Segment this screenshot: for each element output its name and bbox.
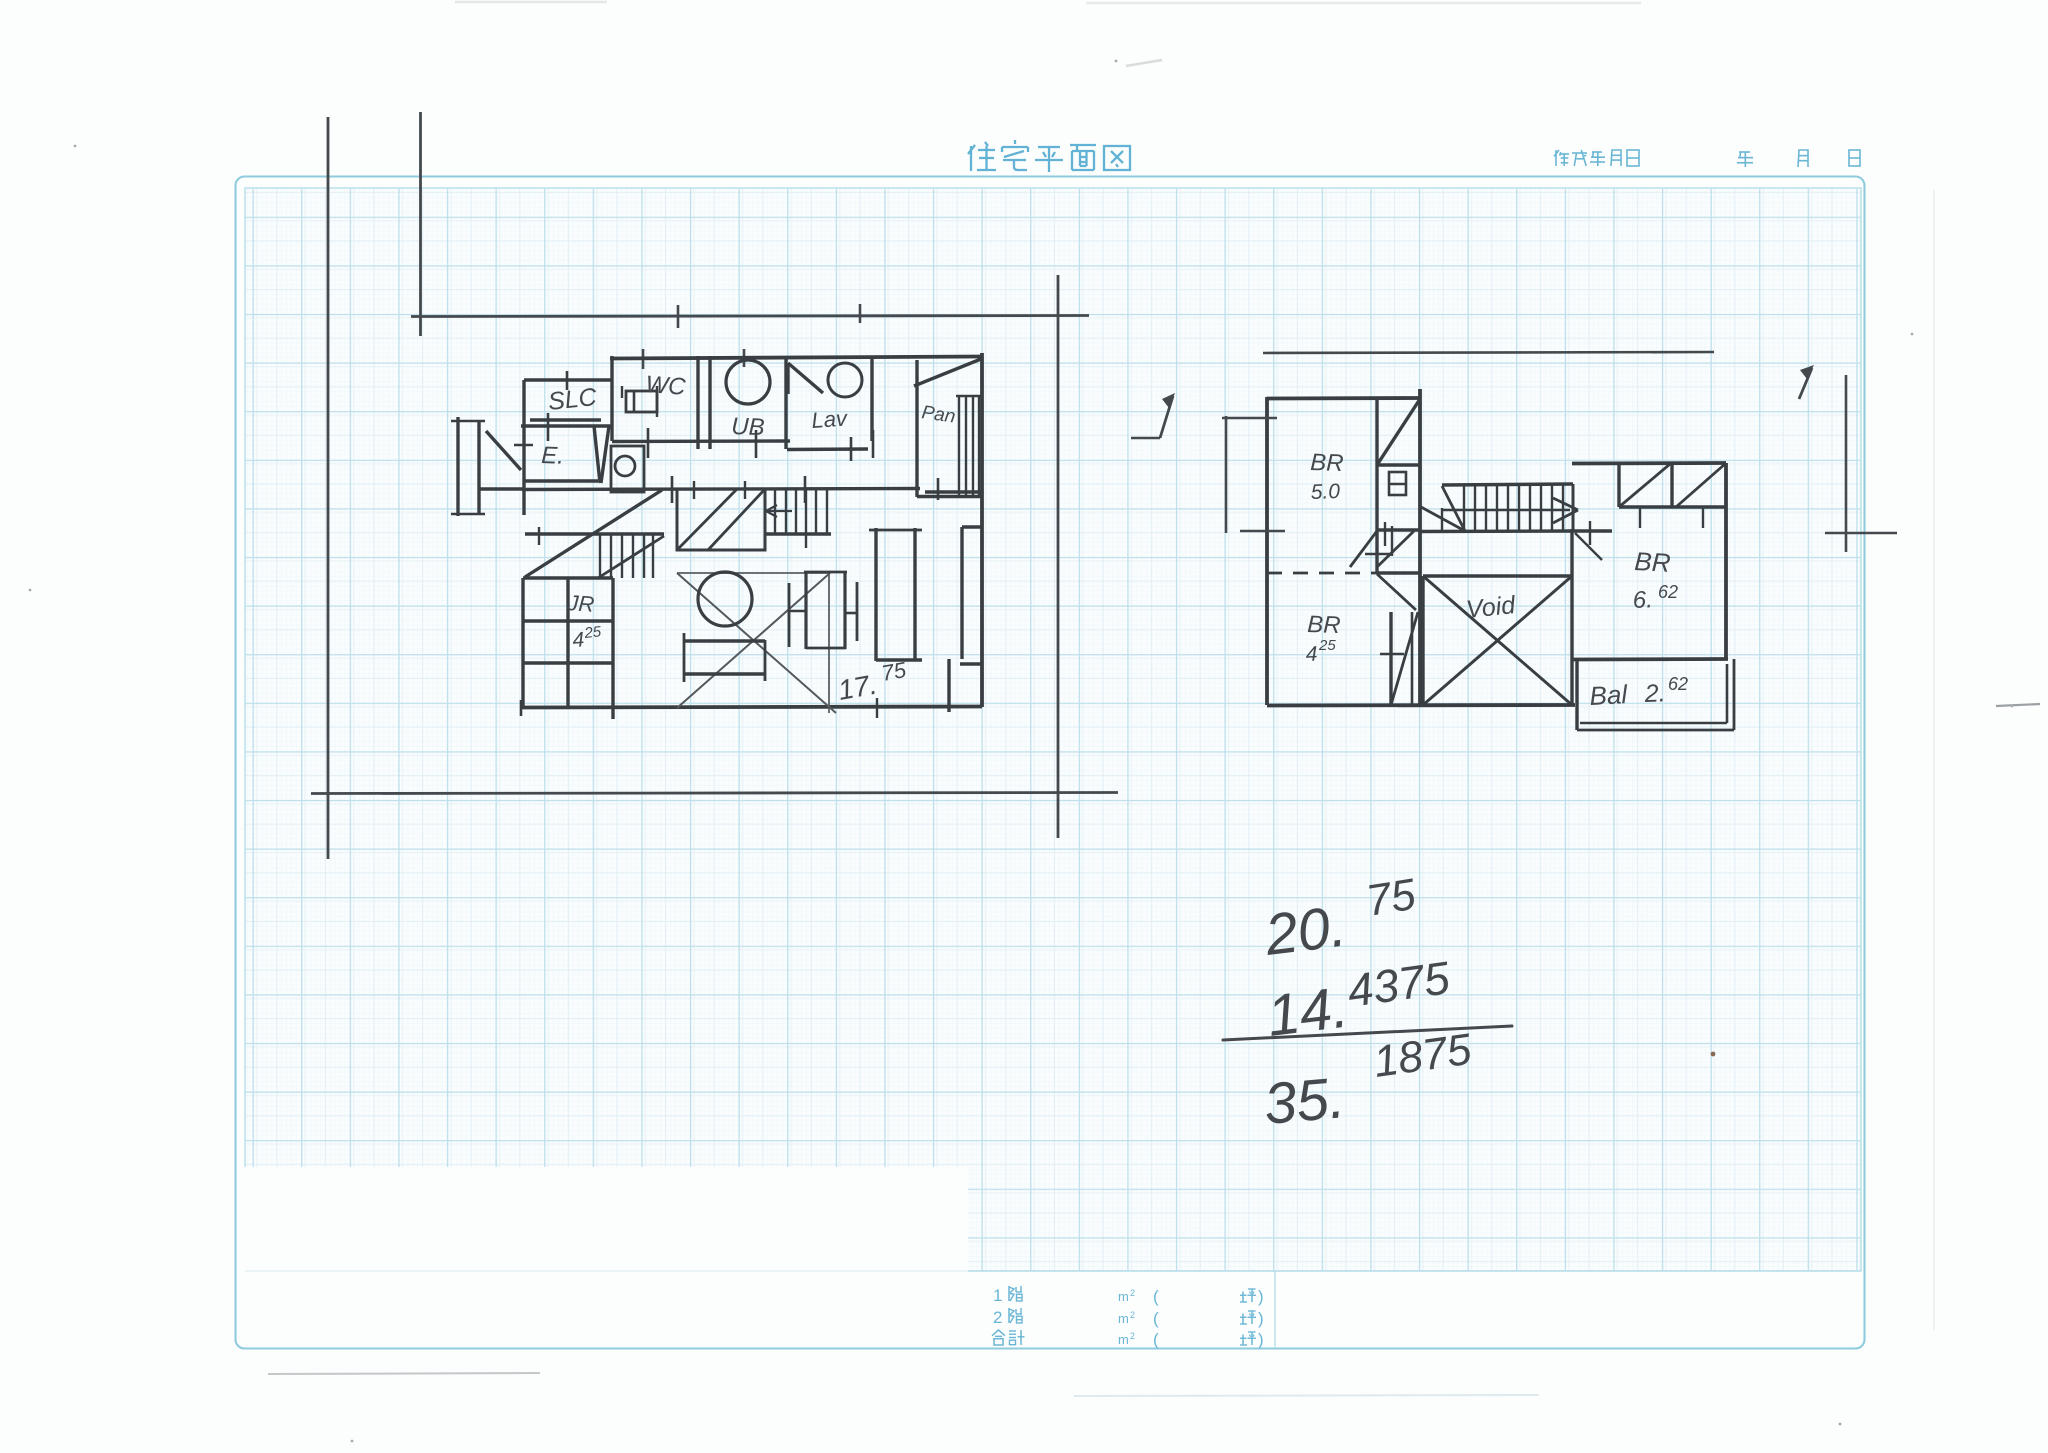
svg-text:): ): [1258, 1309, 1264, 1328]
svg-text:75: 75: [880, 657, 909, 686]
svg-text:m: m: [1118, 1332, 1129, 1347]
svg-text:(: (: [1153, 1287, 1159, 1306]
svg-text:25: 25: [583, 623, 603, 642]
svg-text:SLC: SLC: [547, 383, 599, 416]
svg-text:2: 2: [1130, 1288, 1135, 1298]
svg-text:20.: 20.: [1261, 894, 1350, 968]
svg-text:Bal: Bal: [1589, 679, 1629, 711]
svg-text:4: 4: [1305, 643, 1317, 666]
svg-text:75: 75: [1363, 870, 1420, 926]
svg-text:2: 2: [1130, 1310, 1135, 1320]
svg-text:35.: 35.: [1261, 1065, 1347, 1137]
svg-text:m: m: [1118, 1289, 1129, 1304]
svg-text:2: 2: [1130, 1331, 1135, 1341]
svg-text:UB: UB: [731, 413, 765, 441]
svg-text:5.0: 5.0: [1310, 480, 1340, 504]
svg-text:4: 4: [572, 628, 585, 652]
svg-text:BR: BR: [1310, 449, 1344, 477]
svg-text:2: 2: [993, 1308, 1002, 1327]
svg-text:(: (: [1153, 1330, 1159, 1349]
svg-text:25: 25: [1318, 637, 1336, 654]
svg-text:JR: JR: [566, 590, 596, 617]
svg-text:BR: BR: [1634, 546, 1672, 578]
svg-text:): ): [1258, 1330, 1264, 1349]
svg-text:WC: WC: [645, 371, 687, 401]
svg-text:2.: 2.: [1643, 679, 1666, 708]
svg-text:): ): [1258, 1287, 1264, 1306]
svg-text:BR: BR: [1307, 611, 1341, 639]
svg-text:Lav: Lav: [811, 405, 850, 433]
svg-text:m: m: [1118, 1311, 1129, 1326]
svg-text:62: 62: [1668, 674, 1688, 694]
svg-text:1: 1: [993, 1286, 1002, 1305]
svg-text:62: 62: [1658, 582, 1678, 602]
svg-text:Void: Void: [1465, 591, 1518, 624]
svg-text:(: (: [1153, 1309, 1159, 1328]
svg-text:E.: E.: [541, 442, 565, 470]
svg-text:6.: 6.: [1632, 586, 1653, 614]
